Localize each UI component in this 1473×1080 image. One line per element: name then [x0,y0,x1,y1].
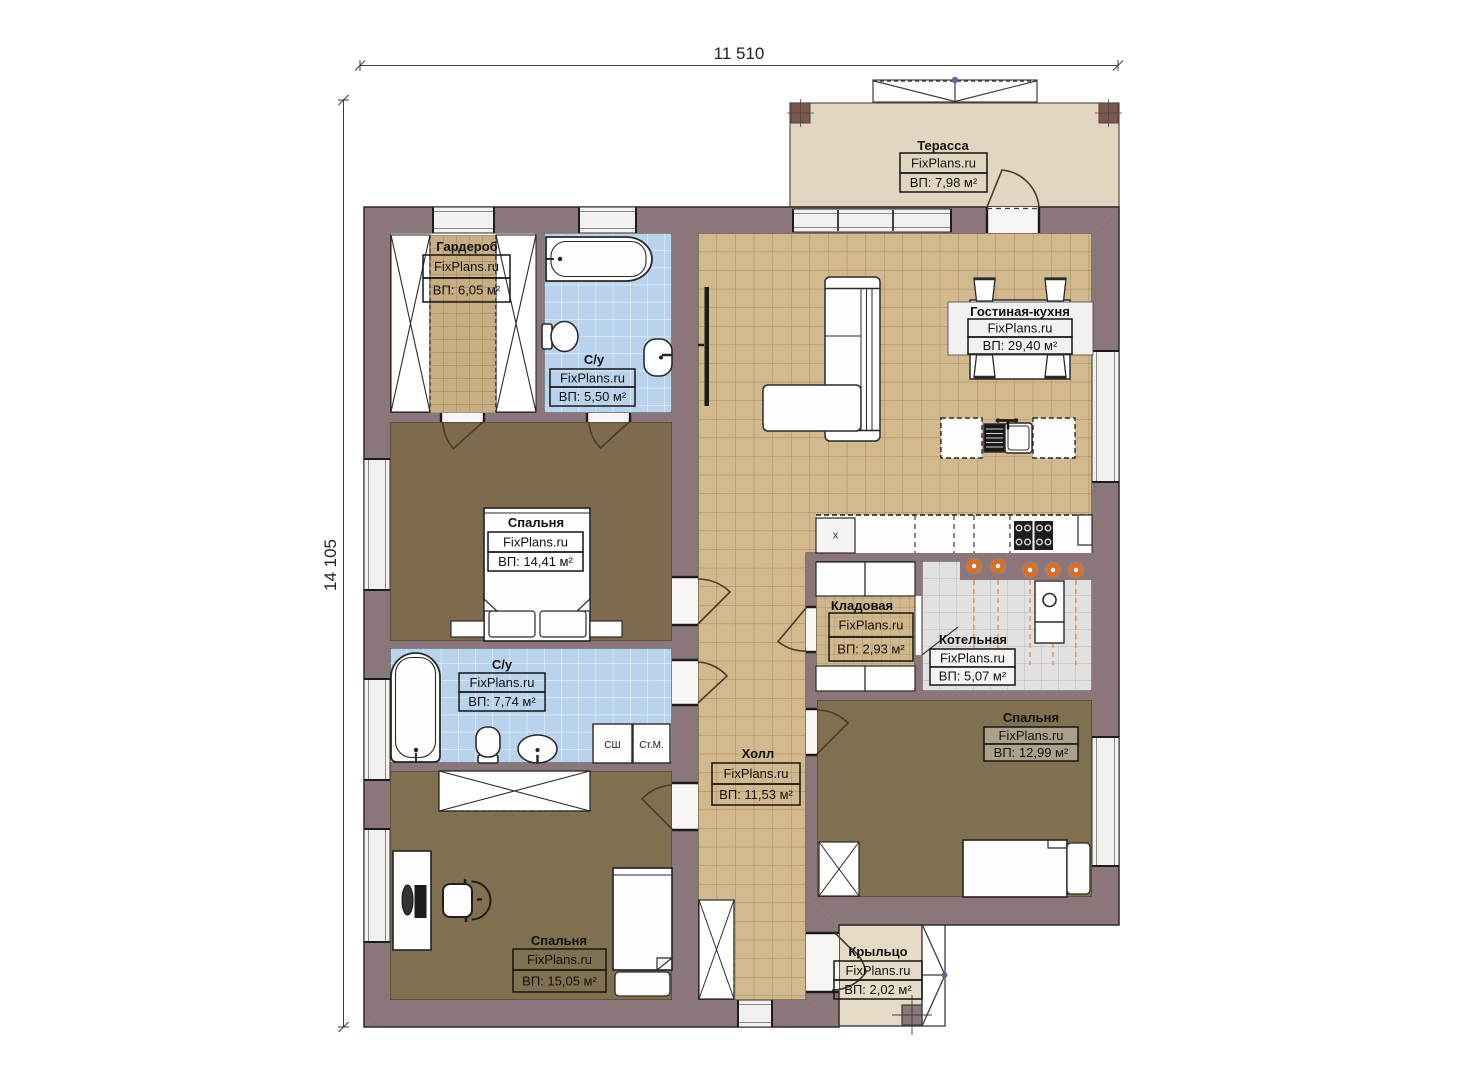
svg-text:Гостиная-кухня: Гостиная-кухня [970,304,1070,319]
svg-text:ВП: 11,53 м²: ВП: 11,53 м² [719,787,793,802]
svg-text:FixPlans.ru: FixPlans.ru [845,963,910,978]
svg-text:Крыльцо: Крыльцо [848,944,907,959]
svg-text:ВП: 2,02 м²: ВП: 2,02 м² [844,982,912,997]
svg-text:Котельная: Котельная [939,632,1007,647]
svg-text:ВП: 6,05 м²: ВП: 6,05 м² [433,283,501,298]
svg-text:С/у: С/у [584,352,605,367]
svg-text:ВП: 15,05 м²: ВП: 15,05 м² [522,974,597,989]
svg-text:FixPlans.ru: FixPlans.ru [987,321,1052,336]
svg-text:FixPlans.ru: FixPlans.ru [434,259,499,274]
svg-text:x: x [833,530,839,542]
svg-text:ВП: 7,74 м²: ВП: 7,74 м² [468,694,536,709]
svg-text:FixPlans.ru: FixPlans.ru [527,952,592,967]
svg-text:Спальня: Спальня [508,515,564,530]
svg-text:Гардероб: Гардероб [436,239,497,254]
svg-text:ВП: 12,99 м²: ВП: 12,99 м² [994,745,1069,760]
svg-text:Спальня: Спальня [1003,710,1059,725]
svg-text:FixPlans.ru: FixPlans.ru [560,371,625,386]
svg-text:Холл: Холл [742,746,775,761]
svg-text:ВП: 29,40 м²: ВП: 29,40 м² [983,338,1058,353]
svg-text:Ст.М.: Ст.М. [639,740,664,751]
svg-text:FixPlans.ru: FixPlans.ru [469,675,534,690]
svg-text:С/у: С/у [492,657,513,672]
svg-text:FixPlans.ru: FixPlans.ru [838,618,903,633]
svg-text:ВП: 5,50 м²: ВП: 5,50 м² [559,389,627,404]
svg-text:14 105: 14 105 [321,539,340,591]
svg-text:Терасса: Терасса [917,138,969,153]
svg-text:Спальня: Спальня [531,933,587,948]
svg-text:ВП: 14,41 м²: ВП: 14,41 м² [498,554,573,569]
svg-text:ВП: 7,98 м²: ВП: 7,98 м² [910,175,978,190]
svg-text:FixPlans.ru: FixPlans.ru [911,156,976,171]
svg-text:FixPlans.ru: FixPlans.ru [503,535,568,550]
svg-text:Кладовая: Кладовая [831,598,893,613]
svg-text:FixPlans.ru: FixPlans.ru [723,766,788,781]
svg-text:СШ: СШ [604,740,620,751]
svg-text:FixPlans.ru: FixPlans.ru [940,651,1005,666]
svg-text:ВП: 2,93 м²: ВП: 2,93 м² [837,642,905,657]
svg-text:FixPlans.ru: FixPlans.ru [998,728,1063,743]
svg-text:ВП: 5,07 м²: ВП: 5,07 м² [939,669,1007,684]
svg-text:11 510: 11 510 [714,44,765,63]
